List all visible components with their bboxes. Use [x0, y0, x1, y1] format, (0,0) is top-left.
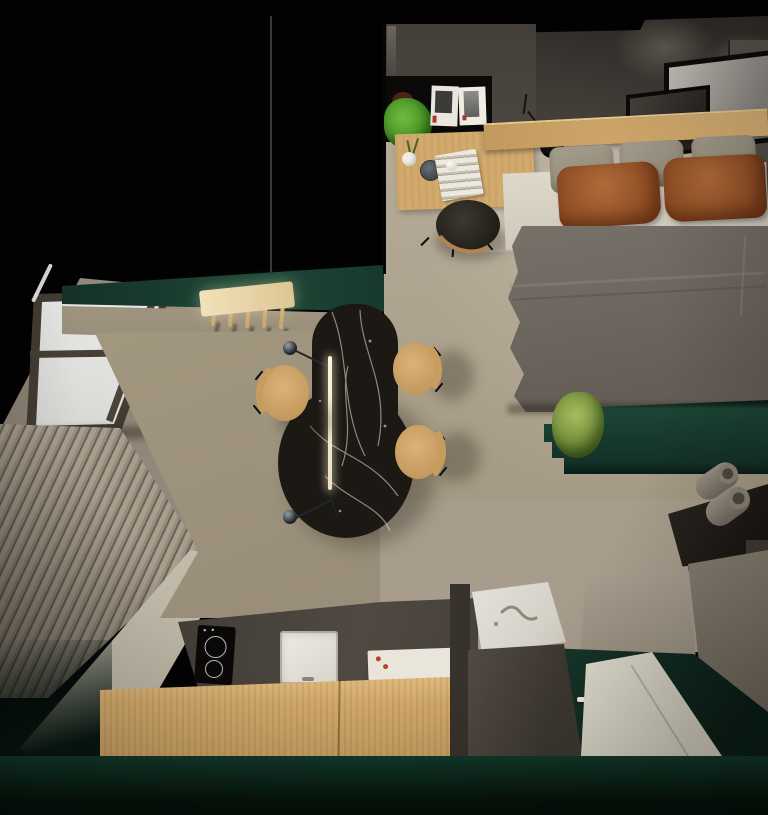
pendant-counterweight-sphere: [283, 510, 297, 524]
bottom-green-floor-edge: [0, 756, 768, 815]
rust-pillow: [662, 153, 767, 222]
faucet: [302, 677, 314, 681]
apartment-render: [0, 0, 768, 815]
dining-chair: [258, 362, 312, 424]
cooktop-control-dot: [204, 629, 206, 631]
white-vase: [402, 152, 416, 166]
cooktop-control-dot: [212, 629, 214, 631]
induction-cooktop: [194, 625, 236, 686]
chair-backrest: [252, 356, 319, 429]
dining-chair: [390, 340, 440, 398]
magazine-accent: [432, 116, 436, 123]
cooktop-burner: [204, 659, 223, 678]
magazine-accent: [462, 115, 466, 120]
dining-chair: [392, 422, 444, 482]
cooktop-burner: [204, 635, 227, 658]
upholstered-stool: [436, 200, 500, 250]
magazine: [458, 87, 486, 126]
magazine: [430, 86, 458, 127]
pendant-counterweight-sphere: [283, 341, 297, 355]
small-ball: [446, 160, 457, 171]
paper-stack: [434, 149, 483, 202]
magazine-cover-photo: [435, 91, 453, 114]
vanity-marble-top: [466, 582, 566, 654]
bed-duvet: [506, 226, 768, 412]
magazine-cover-photo: [463, 91, 479, 118]
partition-wall-edge: [383, 24, 386, 274]
tray-red-dot: [376, 656, 381, 661]
vanity-side-column: [450, 584, 470, 774]
partition-wall-highlight: [387, 26, 396, 80]
kitchen-sink: [280, 631, 338, 684]
rust-pillow: [556, 161, 662, 230]
pendant-ceiling-cord: [270, 16, 272, 274]
tray-red-dot: [383, 664, 388, 669]
